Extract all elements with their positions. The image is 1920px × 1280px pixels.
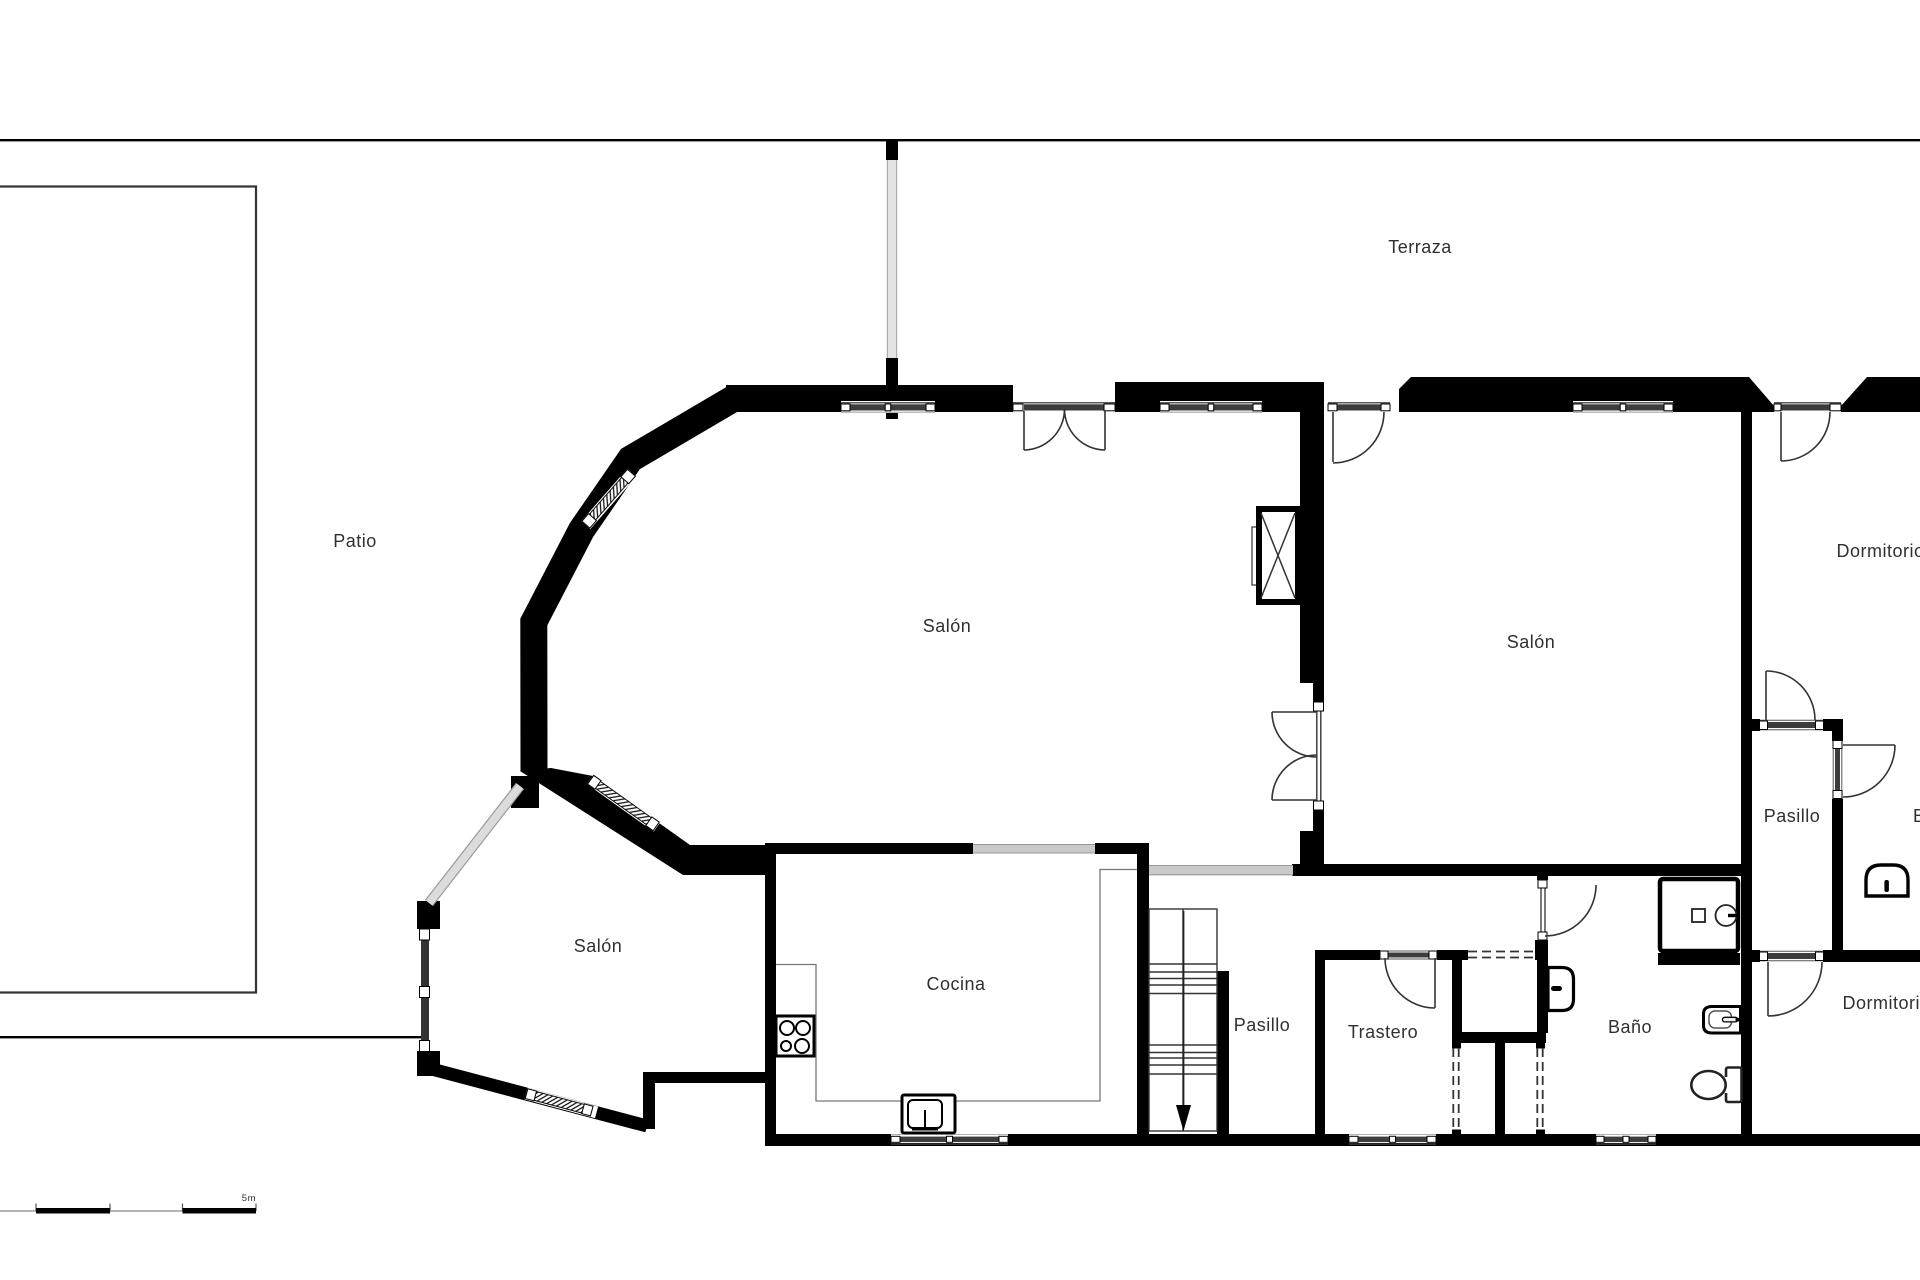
svg-text:Trastero: Trastero: [1348, 1022, 1418, 1042]
svg-text:Baño: Baño: [1608, 1017, 1652, 1037]
svg-text:Pasillo: Pasillo: [1234, 1015, 1291, 1035]
svg-text:5m: 5m: [242, 1193, 256, 1204]
svg-text:Patio: Patio: [333, 531, 377, 551]
svg-text:Pasillo: Pasillo: [1764, 806, 1821, 826]
svg-text:Terraza: Terraza: [1388, 237, 1452, 257]
svg-text:Salón: Salón: [923, 616, 972, 636]
svg-text:Dormitorio: Dormitorio: [1843, 993, 1920, 1013]
svg-text:Salón: Salón: [1507, 632, 1556, 652]
svg-text:Dormitorio: Dormitorio: [1837, 541, 1920, 561]
svg-text:Salón: Salón: [574, 936, 623, 956]
svg-text:Cocina: Cocina: [926, 974, 986, 994]
svg-text:Baño: Baño: [1913, 806, 1920, 826]
